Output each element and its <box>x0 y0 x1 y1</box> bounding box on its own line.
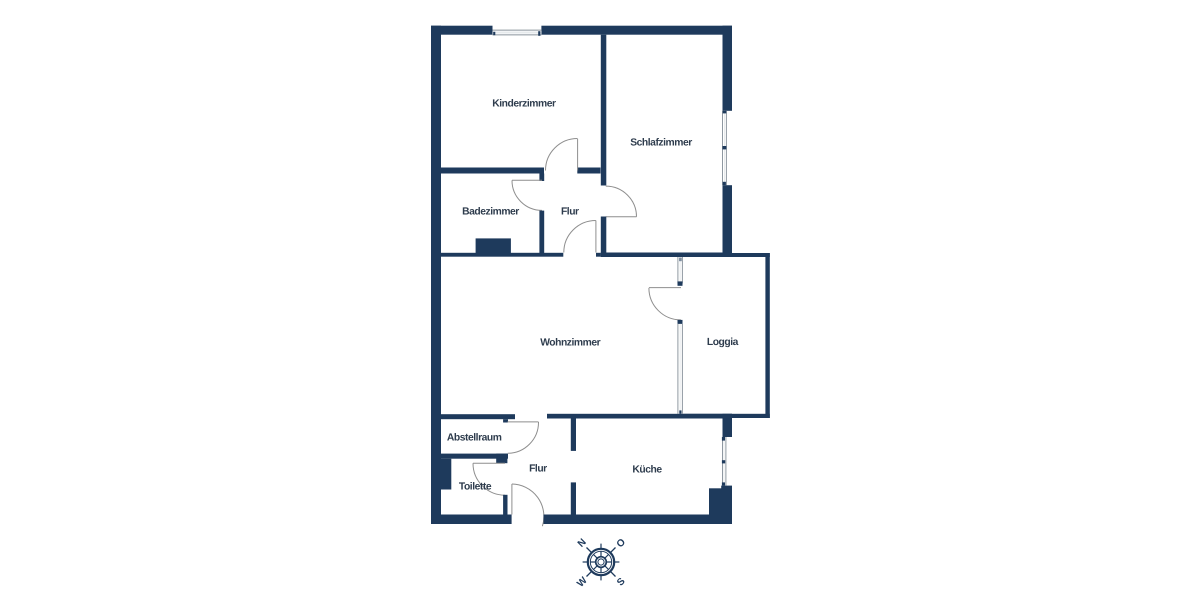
svg-text:Abstellraum: Abstellraum <box>447 432 502 443</box>
svg-text:Kinderzimmer: Kinderzimmer <box>492 98 556 109</box>
svg-text:Flur: Flur <box>561 207 579 218</box>
svg-text:Küche: Küche <box>632 464 662 475</box>
svg-text:Toilette: Toilette <box>459 482 492 493</box>
svg-text:Loggia: Loggia <box>707 337 739 348</box>
svg-text:Schlafzimmer: Schlafzimmer <box>630 137 692 148</box>
svg-text:Badezimmer: Badezimmer <box>462 207 519 218</box>
svg-text:Flur: Flur <box>529 464 547 475</box>
svg-text:Wohnzimmer: Wohnzimmer <box>540 337 600 348</box>
